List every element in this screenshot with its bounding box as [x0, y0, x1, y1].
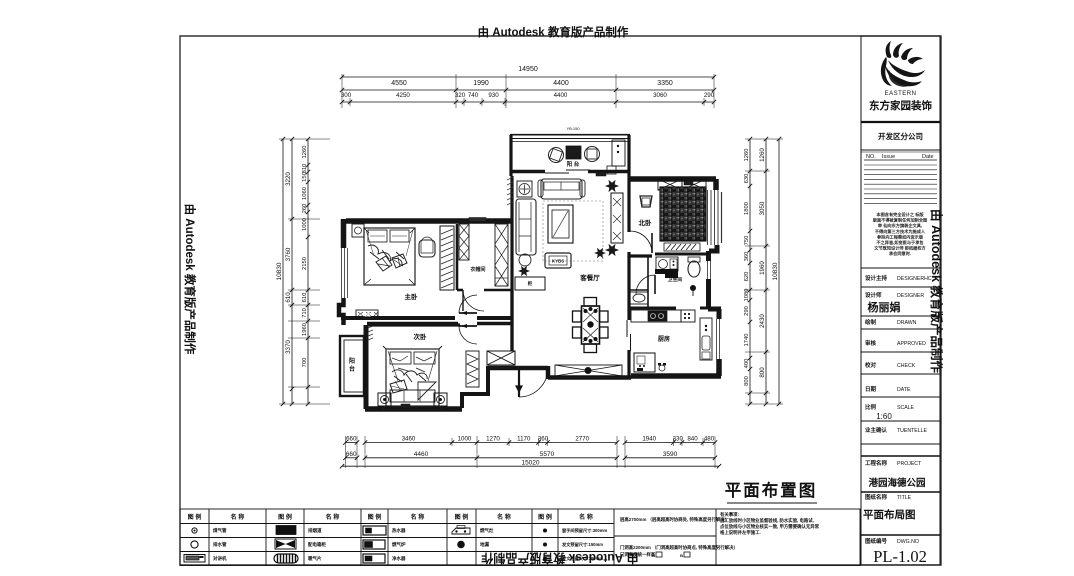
svg-text:NO.: NO.	[866, 154, 876, 160]
svg-text:320: 320	[455, 92, 466, 99]
svg-text:750: 750	[744, 236, 750, 246]
svg-text:2150: 2150	[302, 257, 308, 270]
svg-text:厨房: 厨房	[658, 335, 670, 343]
svg-text:业主确认: 业主确认	[865, 426, 888, 434]
svg-text:360: 360	[538, 436, 549, 443]
svg-text:比例: 比例	[865, 403, 877, 411]
svg-text:3220: 3220	[285, 172, 292, 186]
svg-text:1000: 1000	[458, 436, 472, 443]
svg-text:窗手间预留尺寸:300mm: 窗手间预留尺寸:300mm	[562, 527, 607, 534]
svg-text:热水器: 热水器	[392, 527, 406, 534]
svg-text:840: 840	[687, 436, 698, 443]
svg-text:图 例: 图 例	[278, 513, 292, 521]
svg-text:发文预留尺寸:150mm: 发文预留尺寸:150mm	[562, 541, 603, 548]
svg-text:煤气管: 煤气管	[213, 527, 227, 534]
svg-text:图纸编号: 图纸编号	[865, 537, 888, 545]
svg-text:10830: 10830	[772, 262, 779, 280]
svg-text:DRAWN: DRAWN	[897, 320, 917, 326]
svg-text:620: 620	[744, 272, 750, 282]
svg-text:4400: 4400	[553, 80, 569, 87]
svg-text:15020: 15020	[521, 460, 539, 467]
svg-text:由 Autodesk 教育版产品制作: 由 Autodesk 教育版产品制作	[481, 551, 638, 566]
svg-text:对讲机: 对讲机	[213, 555, 227, 562]
svg-text:承会同意时.: 承会同意时.	[889, 250, 911, 257]
svg-text:格上说明并左甲施工.: 格上说明并左甲施工.	[720, 529, 761, 536]
svg-text:阳: 阳	[349, 357, 355, 365]
svg-text:施工放线时小区物业监督验线, 防水实验, 电路试,: 施工放线时小区物业监督验线, 防水实验, 电路试,	[720, 517, 814, 524]
svg-text:由 Autodesk 教育版产品制作: 由 Autodesk 教育版产品制作	[929, 209, 944, 373]
svg-text:客餐厅: 客餐厅	[579, 273, 600, 282]
svg-text:DWG.NO: DWG.NO	[897, 539, 919, 545]
svg-text:260: 260	[302, 204, 308, 214]
svg-text:630: 630	[744, 174, 750, 184]
svg-text:5570: 5570	[540, 451, 555, 458]
svg-text:暖气片: 暖气片	[308, 555, 322, 562]
svg-text:2770: 2770	[575, 436, 589, 443]
svg-text:290: 290	[704, 92, 715, 99]
svg-text:1270: 1270	[486, 436, 500, 443]
svg-text:1960: 1960	[302, 323, 308, 336]
svg-text:1740: 1740	[744, 334, 750, 347]
svg-text:图 例: 图 例	[538, 513, 552, 521]
svg-text:700: 700	[302, 358, 308, 368]
svg-text:绘制: 绘制	[865, 318, 877, 326]
svg-text:4400: 4400	[554, 92, 568, 99]
svg-text:1800: 1800	[744, 202, 750, 215]
svg-text:日期: 日期	[865, 385, 877, 393]
svg-text:配电箱柜: 配电箱柜	[308, 541, 326, 548]
svg-text:PROJECT: PROJECT	[897, 461, 922, 467]
svg-text:KYBS: KYBS	[552, 259, 565, 264]
svg-text:DESIGNER: DESIGNER	[897, 293, 924, 299]
svg-text:开发区分公司: 开发区分公司	[878, 131, 923, 141]
svg-text:名 称: 名 称	[579, 513, 593, 521]
svg-text:3370: 3370	[285, 340, 292, 354]
svg-text:710: 710	[302, 308, 308, 318]
svg-text:1260: 1260	[744, 149, 750, 162]
svg-text:由 Autodesk 教育版产品制作: 由 Autodesk 教育版产品制作	[478, 25, 629, 39]
svg-text:名 称: 名 称	[231, 513, 245, 521]
svg-text:330: 330	[673, 436, 684, 443]
svg-text:由 Autodesk 教育版产品制作: 由 Autodesk 教育版产品制作	[183, 204, 197, 355]
svg-text:800: 800	[759, 367, 766, 378]
svg-text:港园海德公园: 港园海德公园	[868, 477, 925, 489]
svg-text:台: 台	[349, 365, 355, 373]
svg-text:燃气灶: 燃气灶	[480, 527, 494, 534]
svg-text:150: 150	[302, 172, 308, 182]
svg-text:Issue: Issue	[882, 154, 895, 160]
svg-text:名 称: 名 称	[497, 513, 511, 521]
svg-text:1000: 1000	[302, 218, 308, 231]
svg-text:燃气炉: 燃气炉	[392, 541, 406, 548]
svg-text:3350: 3350	[657, 80, 673, 87]
svg-text:审核: 审核	[865, 339, 877, 347]
svg-text:610: 610	[285, 292, 292, 303]
svg-text:图 例: 图 例	[455, 513, 469, 521]
svg-text:点位放线与小区物业核实一致, 甲方需要确认无异常: 点位放线与小区物业核实一致, 甲方需要确认无异常	[720, 523, 820, 530]
svg-text:矮柜: 矮柜	[363, 312, 371, 317]
svg-text:次卧: 次卧	[414, 332, 428, 341]
svg-text:平面布置图: 平面布置图	[725, 480, 818, 500]
svg-text:地漏: 地漏	[480, 541, 489, 548]
svg-text:610: 610	[302, 293, 308, 303]
svg-text:CHECK: CHECK	[897, 363, 916, 369]
svg-text:14950: 14950	[518, 66, 538, 73]
svg-text:740: 740	[468, 92, 479, 99]
svg-text:2430: 2430	[759, 314, 766, 328]
svg-text:有关事项:: 有关事项:	[720, 511, 740, 518]
svg-text:衣帽间: 衣帽间	[470, 266, 485, 273]
svg-text:480: 480	[704, 436, 715, 443]
svg-text:设计主持: 设计主持	[865, 274, 888, 282]
svg-text:发文预留尺寸:180mm: 发文预留尺寸:180mm	[562, 555, 603, 562]
svg-text:东方家园装饰: 东方家园装饰	[869, 99, 932, 112]
svg-text:卫生间: 卫生间	[668, 276, 683, 283]
svg-text:4250: 4250	[396, 92, 410, 99]
svg-text:设计师: 设计师	[865, 291, 882, 299]
svg-text:SCALE: SCALE	[897, 405, 915, 411]
svg-text:A: A	[652, 553, 655, 558]
svg-text:4460: 4460	[414, 451, 429, 458]
svg-text:1080: 1080	[744, 289, 750, 302]
svg-text:10830: 10830	[276, 262, 283, 280]
svg-text:图 例: 图 例	[188, 513, 202, 521]
svg-text:TITLE: TITLE	[897, 495, 912, 501]
svg-text:排烟道: 排烟道	[308, 527, 322, 534]
svg-text:EASTERN: EASTERN	[885, 91, 917, 97]
svg-text:校对: 校对	[865, 361, 877, 369]
svg-text:3760: 3760	[285, 247, 292, 261]
svg-text:B: B	[680, 553, 683, 558]
svg-text:Date: Date	[922, 154, 934, 160]
svg-text:1990: 1990	[473, 80, 489, 87]
svg-text:1260: 1260	[759, 148, 766, 162]
svg-text:YB:150: YB:150	[566, 126, 580, 131]
svg-text:1940: 1940	[642, 436, 656, 443]
svg-text:柜: 柜	[528, 280, 533, 287]
svg-text:660: 660	[346, 436, 357, 443]
svg-text:660: 660	[346, 451, 357, 458]
svg-text:名 称: 名 称	[411, 513, 425, 521]
svg-text:3050: 3050	[759, 201, 766, 215]
svg-text:图纸名称: 图纸名称	[865, 493, 888, 501]
svg-text:1170: 1170	[517, 436, 531, 443]
svg-text:1260: 1260	[302, 146, 308, 159]
svg-text:PL-1.02: PL-1.02	[873, 547, 927, 566]
svg-text:阳 台: 阳 台	[567, 160, 580, 168]
svg-text:310: 310	[302, 164, 308, 174]
svg-text:门洞高度统一样高: 门洞高度统一样高	[620, 551, 656, 558]
svg-text:TUENTELLE: TUENTELLE	[897, 428, 928, 434]
svg-text:门洞高2200mm （门洞高超高时协商点, 特殊高度另行解: 门洞高2200mm （门洞高超高时协商点, 特殊高度另行解决）	[620, 544, 738, 551]
svg-text:图 例: 图 例	[368, 513, 382, 521]
svg-text:3460: 3460	[402, 436, 416, 443]
svg-text:930: 930	[488, 92, 499, 99]
svg-text:300: 300	[341, 92, 352, 99]
svg-text:工程名称: 工程名称	[865, 459, 888, 467]
svg-text:360: 360	[744, 252, 750, 262]
svg-text:主卧: 主卧	[405, 292, 419, 301]
svg-text:1:60: 1:60	[876, 412, 892, 421]
svg-text:4550: 4550	[391, 80, 407, 87]
svg-text:净水器: 净水器	[392, 555, 406, 562]
svg-text:1960: 1960	[759, 261, 766, 275]
svg-text:3060: 3060	[653, 92, 667, 99]
svg-text:400: 400	[744, 359, 750, 369]
svg-text:排水管: 排水管	[213, 541, 227, 548]
svg-text:800: 800	[744, 376, 750, 386]
svg-text:1060: 1060	[302, 187, 308, 200]
svg-text:290: 290	[744, 306, 750, 316]
svg-text:3590: 3590	[663, 451, 678, 458]
svg-text:平面布局图: 平面布局图	[863, 508, 916, 521]
svg-text:北卧: 北卧	[639, 218, 653, 227]
svg-text:层高2700mm （层高超高时协商处, 特殊高度另行解决）: 层高2700mm （层高超高时协商处, 特殊高度另行解决）	[620, 516, 729, 523]
svg-text:DESIGNERHC: DESIGNERHC	[897, 276, 932, 282]
svg-text:名 称: 名 称	[326, 513, 340, 521]
svg-text:APPROVED: APPROVED	[897, 341, 926, 347]
svg-text:DATE: DATE	[897, 387, 911, 393]
svg-text:杨丽娟: 杨丽娟	[868, 300, 901, 314]
